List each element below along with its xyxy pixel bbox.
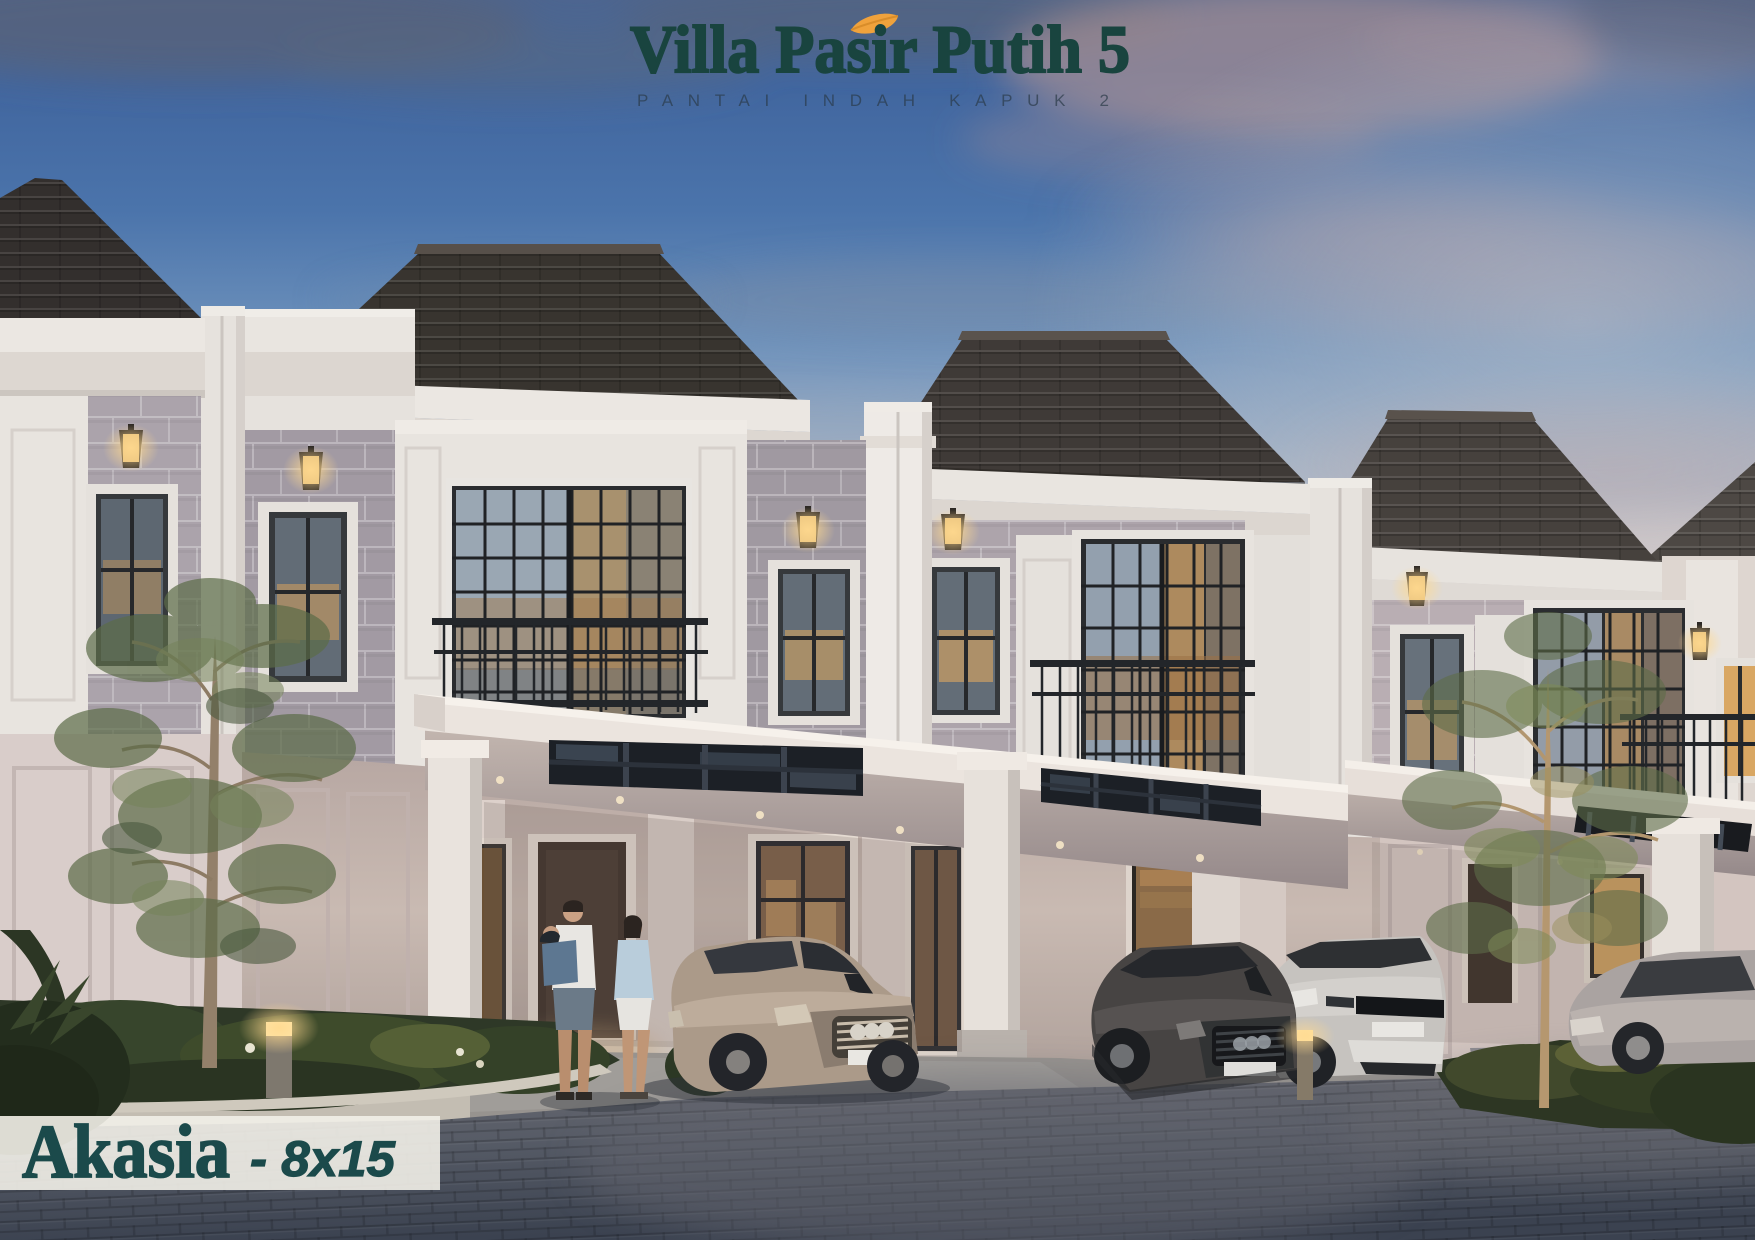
svg-text:Akasia: Akasia xyxy=(22,1110,230,1194)
svg-text:Villa Pasir Putih 5: Villa Pasir Putih 5 xyxy=(630,11,1130,87)
svg-text:PANTAI INDAH KAPUK 2: PANTAI INDAH KAPUK 2 xyxy=(637,91,1123,110)
svg-text:- 8x15: - 8x15 xyxy=(250,1131,396,1187)
